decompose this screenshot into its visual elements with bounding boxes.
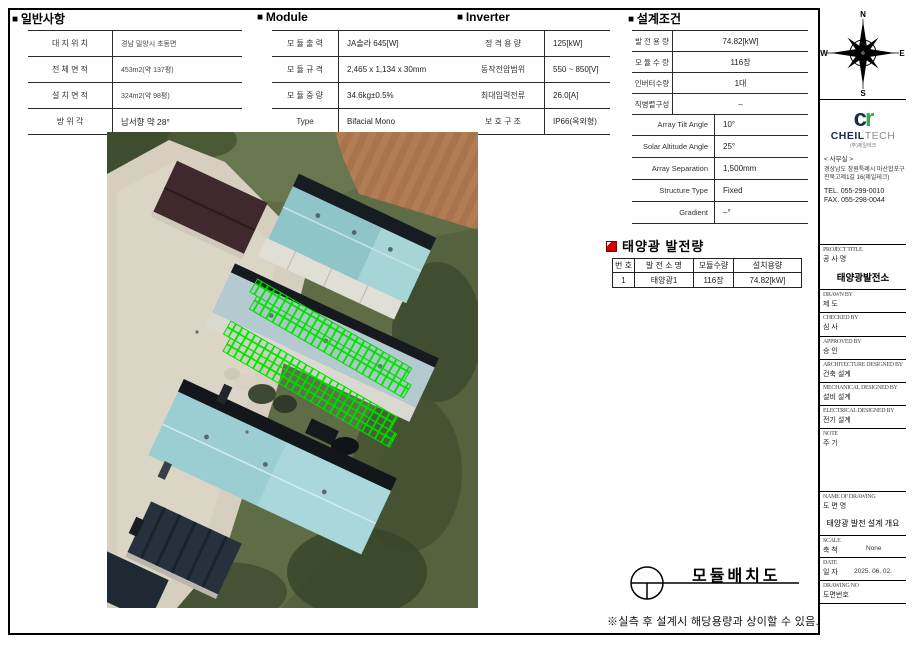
generation-title: 태양광 발전량 [622,236,704,255]
row-value: 1,500mm [715,158,808,179]
field-drawn-by: DRAWN BY 제 도 [820,290,906,313]
scale-value: None [866,545,882,552]
company-box: cr CHEILTECH (주)제일테크 < 사무실 > 경상남도 창원특례시 … [820,100,906,245]
row-label: 발 전 용 량 [632,31,673,51]
row-label: 전 체 면 적 [28,57,113,82]
row-value: –° [715,202,808,223]
row-label: Gradient [632,202,715,223]
field-drawing-no: DRAWING NO 도면번호 [820,581,906,604]
table-row: Solar Altitude Angle25° [632,136,808,158]
table-row: Array Tilt Angle10° [632,114,808,136]
satellite-image [107,132,478,608]
field-name-of-drawing: NAME OF DRAWING 도 면 명 태양광 발전 설계 개요 [820,492,906,536]
row-value: 34.6kg±0.5% [339,83,462,108]
row-label: Solar Altitude Angle [632,136,715,157]
table-cell: 태양광1 [635,273,694,287]
row-value: 남서향 약 28° [113,109,242,134]
row-value: 125[kW] [545,31,610,56]
office-heading: < 사무실 > [824,156,906,164]
section-title-inverter: Inverter [457,10,510,24]
section-title-design: 설계조건 [628,10,681,27]
table-cell: 116장 [694,273,734,287]
row-value: 324m2(약 98평) [113,83,242,108]
office-fax: FAX. 055-298-0044 [824,196,906,205]
field-mechanical-designed-by: MECHANICAL DESIGNED BY 설비 설계 [820,383,906,406]
red-flag-icon [606,241,617,252]
table-cell: 1 [613,273,635,287]
office-info: < 사무실 > 경상남도 창원특례시 마산합포구 진북고제1길 16(제일테크)… [820,156,906,205]
field-project-title: PROJECT TITLE 공 사 명 태양광발전소 [820,245,906,290]
table-row: Array Separation1,500mm [632,158,808,180]
row-label: 모 듈 규 격 [272,57,339,82]
row-value: 1대 [673,73,808,93]
field-checked-by: CHECKED BY 심 사 [820,313,906,337]
compass-south-label: S [860,89,866,98]
compass-east-label: E [899,49,905,58]
row-value: 453m2(약 137평) [113,57,242,82]
table-row: 모 듈 규 격2,465 x 1,134 x 30mm [272,57,462,83]
row-value: JA솔라 645[W] [339,31,462,56]
row-value: 10° [715,114,808,135]
row-label: 대 지 위 치 [28,31,113,56]
drawing-caption: 모듈배치도 [692,562,781,586]
generation-table: 번 호 발 전 소 명 모듈수량 설치용량 1 태양광1 116장 74.82[… [612,258,802,288]
column-header: 발 전 소 명 [635,259,694,273]
field-approved-by: APPROVED BY 승 인 [820,337,906,360]
table-row: 설 치 면 적324m2(약 98평) [28,83,242,109]
design-table: 발 전 용 량74.82[kW] 모 듈 수 량116장 인버터수량1대 직병렬… [632,30,808,115]
section-title-general: 일반사항 [12,10,65,27]
compass-box: N E S W [820,8,906,100]
compass-north-label: N [860,10,866,19]
table-row: 인버터수량1대 [632,73,808,94]
row-label: 정 격 용 량 [462,31,545,56]
office-tel: TEL. 055-299-0010 [824,187,906,196]
drawing-name-value: 태양광 발전 설계 개요 [820,518,906,529]
company-logo-sub: (주)제일테크 [820,142,906,149]
row-value: 2,465 x 1,134 x 30mm [339,57,462,82]
row-label: 직병렬구성 [632,94,673,114]
field-empty [820,604,906,633]
table-cell: 74.82[kW] [734,273,801,287]
module-table: 모 듈 출 력JA솔라 645[W] 모 듈 규 격2,465 x 1,134 … [272,30,462,135]
row-label: Array Separation [632,158,715,179]
table-row: 정 격 용 량125[kW] [462,31,610,57]
section-title-module: Module [257,10,308,24]
row-label: 모 듈 출 력 [272,31,339,56]
row-value: – [673,94,808,114]
company-logo-name: CHEILTECH [820,130,906,142]
field-electrical-designed-by: ELECTRICAL DESIGNED BY 전기 설계 [820,406,906,429]
row-label: 동작전압범위 [462,57,545,82]
field-scale: SCALE 축 척 None [820,536,906,558]
row-value: Fixed [715,180,808,201]
row-value: 26.0[A] [545,83,610,108]
row-label: 인버터수량 [632,73,673,93]
project-title-value: 태양광발전소 [820,270,906,284]
row-label: 모 듈 수 량 [632,52,673,72]
design-array-table: Array Tilt Angle10° Solar Altitude Angle… [632,114,808,224]
row-value: 550 ~ 850[V] [545,57,610,82]
compass-icon: N E S W [820,8,906,98]
table-row: 모 듈 중 량34.6kg±0.5% [272,83,462,109]
table-row: 발 전 용 량74.82[kW] [632,31,808,52]
general-table: 대 지 위 치경남 밀양시 초동면 전 체 면 적453m2(약 137평) 설… [28,30,242,135]
table-row: 최대입력전류26.0[A] [462,83,610,109]
field-note: NOTE 주 기 [820,429,906,492]
row-value: IP66(옥외형) [545,109,610,134]
table-row: 대 지 위 치경남 밀양시 초동면 [28,31,242,57]
row-value: 116장 [673,52,808,72]
table-row: Structure TypeFixed [632,180,808,202]
row-label: 최대입력전류 [462,83,545,108]
row-value: 25° [715,136,808,157]
table-row: 모 듈 수 량116장 [632,52,808,73]
field-date: DATE 일 자 2025. 06. 02. [820,558,906,581]
column-header: 번 호 [613,259,635,273]
office-address-line2: 진북고제1길 16(제일테크) [824,174,906,182]
row-label: 보 호 구 조 [462,109,545,134]
table-row: Gradient–° [632,202,808,224]
row-label: Array Tilt Angle [632,114,715,135]
company-logo-mark: cr [820,108,906,130]
date-value: 2025. 06. 02. [854,568,892,575]
compass-west-label: W [820,49,828,58]
column-header: 설치용량 [734,259,801,273]
row-label: Type [272,109,339,134]
office-address-line1: 경상남도 창원특례시 마산합포구 [824,166,906,174]
row-value: 74.82[kW] [673,31,808,51]
table-row: 모 듈 출 력JA솔라 645[W] [272,31,462,57]
bottom-note: ※실측 후 설계시 해당용량과 상이할 수 있음. [607,613,819,629]
row-label: 모 듈 중 량 [272,83,339,108]
row-label: Structure Type [632,180,715,201]
title-block: N E S W cr CHEILTECH (주)제일테크 < 사무실 > 경상남… [818,8,906,635]
field-architecture-designed-by: ARCHITECTURE DESIGNED BY 건축 설계 [820,360,906,383]
column-header: 모듈수량 [694,259,734,273]
table-row: 직병렬구성– [632,94,808,115]
inverter-table: 정 격 용 량125[kW] 동작전압범위550 ~ 850[V] 최대입력전류… [462,30,610,135]
table-row: 동작전압범위550 ~ 850[V] [462,57,610,83]
drawing-sheet: 일반사항 Module Inverter 설계조건 대 지 위 치경남 밀양시 … [0,0,915,645]
row-value: Bifacial Mono [339,109,462,134]
table-row: 전 체 면 적453m2(약 137평) [28,57,242,83]
row-label: 방 위 각 [28,109,113,134]
table-row: 보 호 구 조IP66(옥외형) [462,109,610,135]
row-label: 설 치 면 적 [28,83,113,108]
row-value: 경남 밀양시 초동면 [113,31,242,56]
